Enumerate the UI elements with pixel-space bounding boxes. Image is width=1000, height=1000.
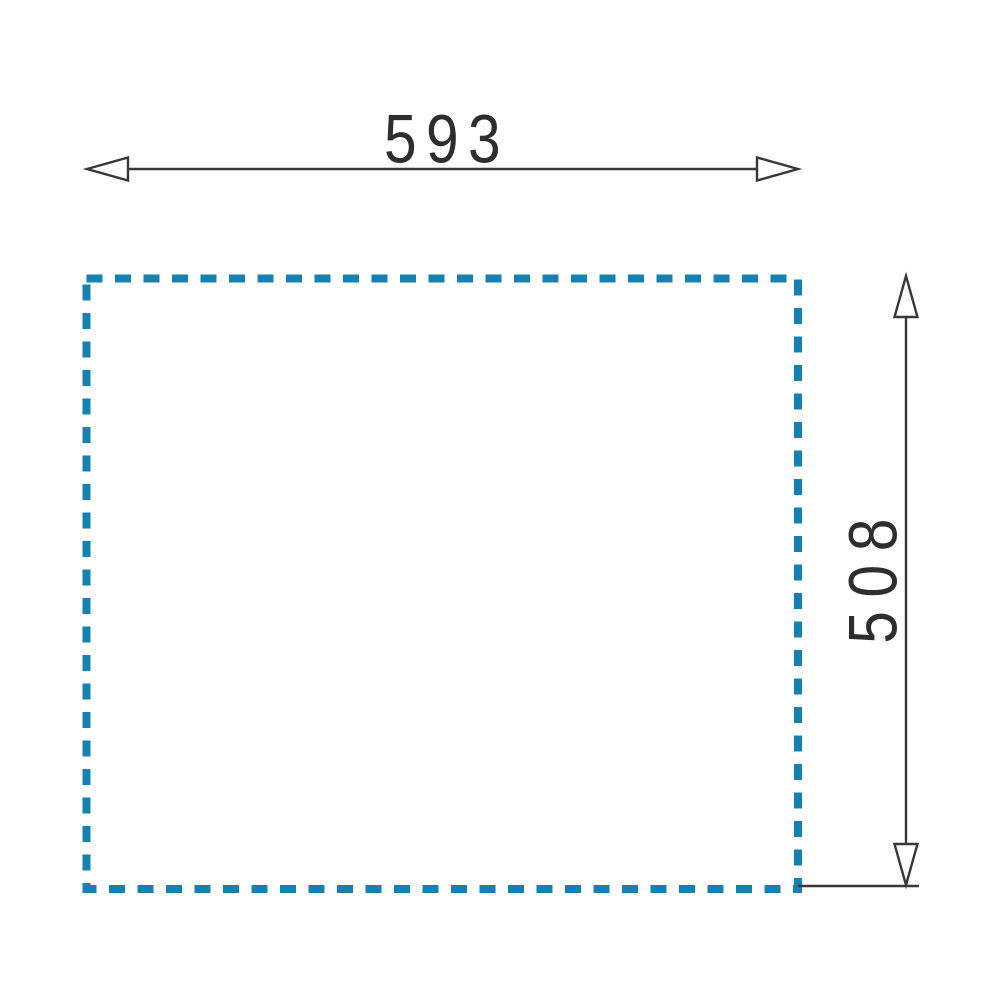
svg-text:593: 593 bbox=[384, 100, 510, 178]
svg-text:508: 508 bbox=[834, 505, 912, 644]
